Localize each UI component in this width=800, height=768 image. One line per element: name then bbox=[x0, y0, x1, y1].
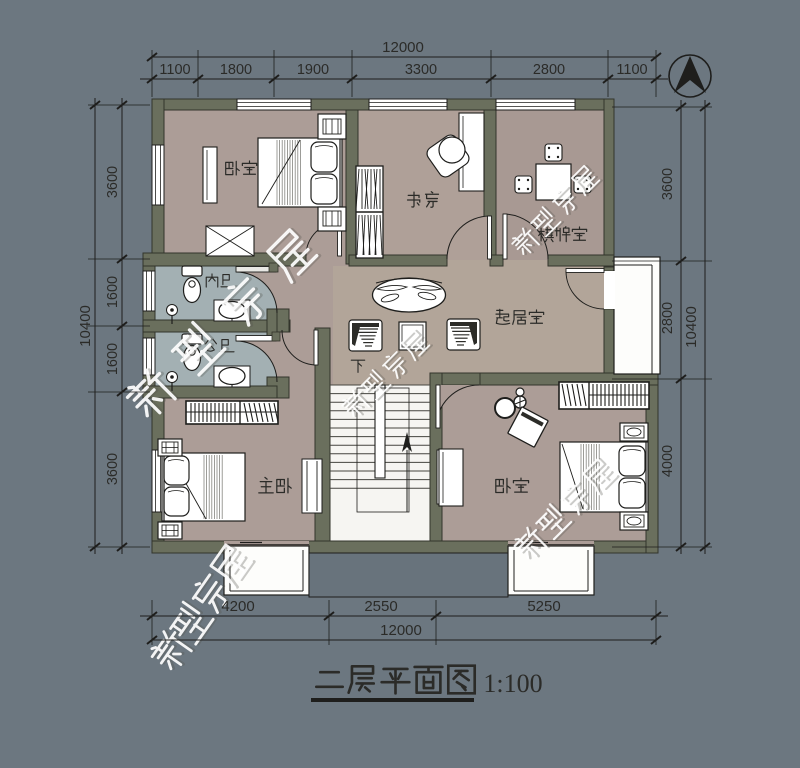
svg-text:3600: 3600 bbox=[660, 168, 676, 200]
svg-text:4000: 4000 bbox=[660, 445, 676, 477]
svg-text:2800: 2800 bbox=[660, 302, 676, 334]
svg-text:4200: 4200 bbox=[221, 598, 254, 615]
svg-text:12000: 12000 bbox=[382, 39, 424, 56]
svg-text:1600: 1600 bbox=[105, 343, 121, 375]
svg-text:5250: 5250 bbox=[527, 598, 560, 615]
svg-text:1100: 1100 bbox=[159, 62, 190, 78]
svg-text:2550: 2550 bbox=[364, 598, 397, 615]
svg-text:3600: 3600 bbox=[105, 166, 121, 198]
svg-text:3300: 3300 bbox=[405, 62, 437, 78]
svg-text:12000: 12000 bbox=[380, 622, 422, 639]
svg-text:1:100: 1:100 bbox=[483, 669, 542, 698]
svg-text:10400: 10400 bbox=[683, 306, 700, 348]
svg-text:1800: 1800 bbox=[220, 62, 252, 78]
svg-text:3600: 3600 bbox=[105, 453, 121, 485]
svg-text:10400: 10400 bbox=[77, 305, 94, 347]
svg-text:2800: 2800 bbox=[533, 62, 565, 78]
svg-text:1900: 1900 bbox=[297, 62, 329, 78]
svg-text:1600: 1600 bbox=[105, 276, 121, 308]
svg-text:1100: 1100 bbox=[616, 62, 647, 78]
